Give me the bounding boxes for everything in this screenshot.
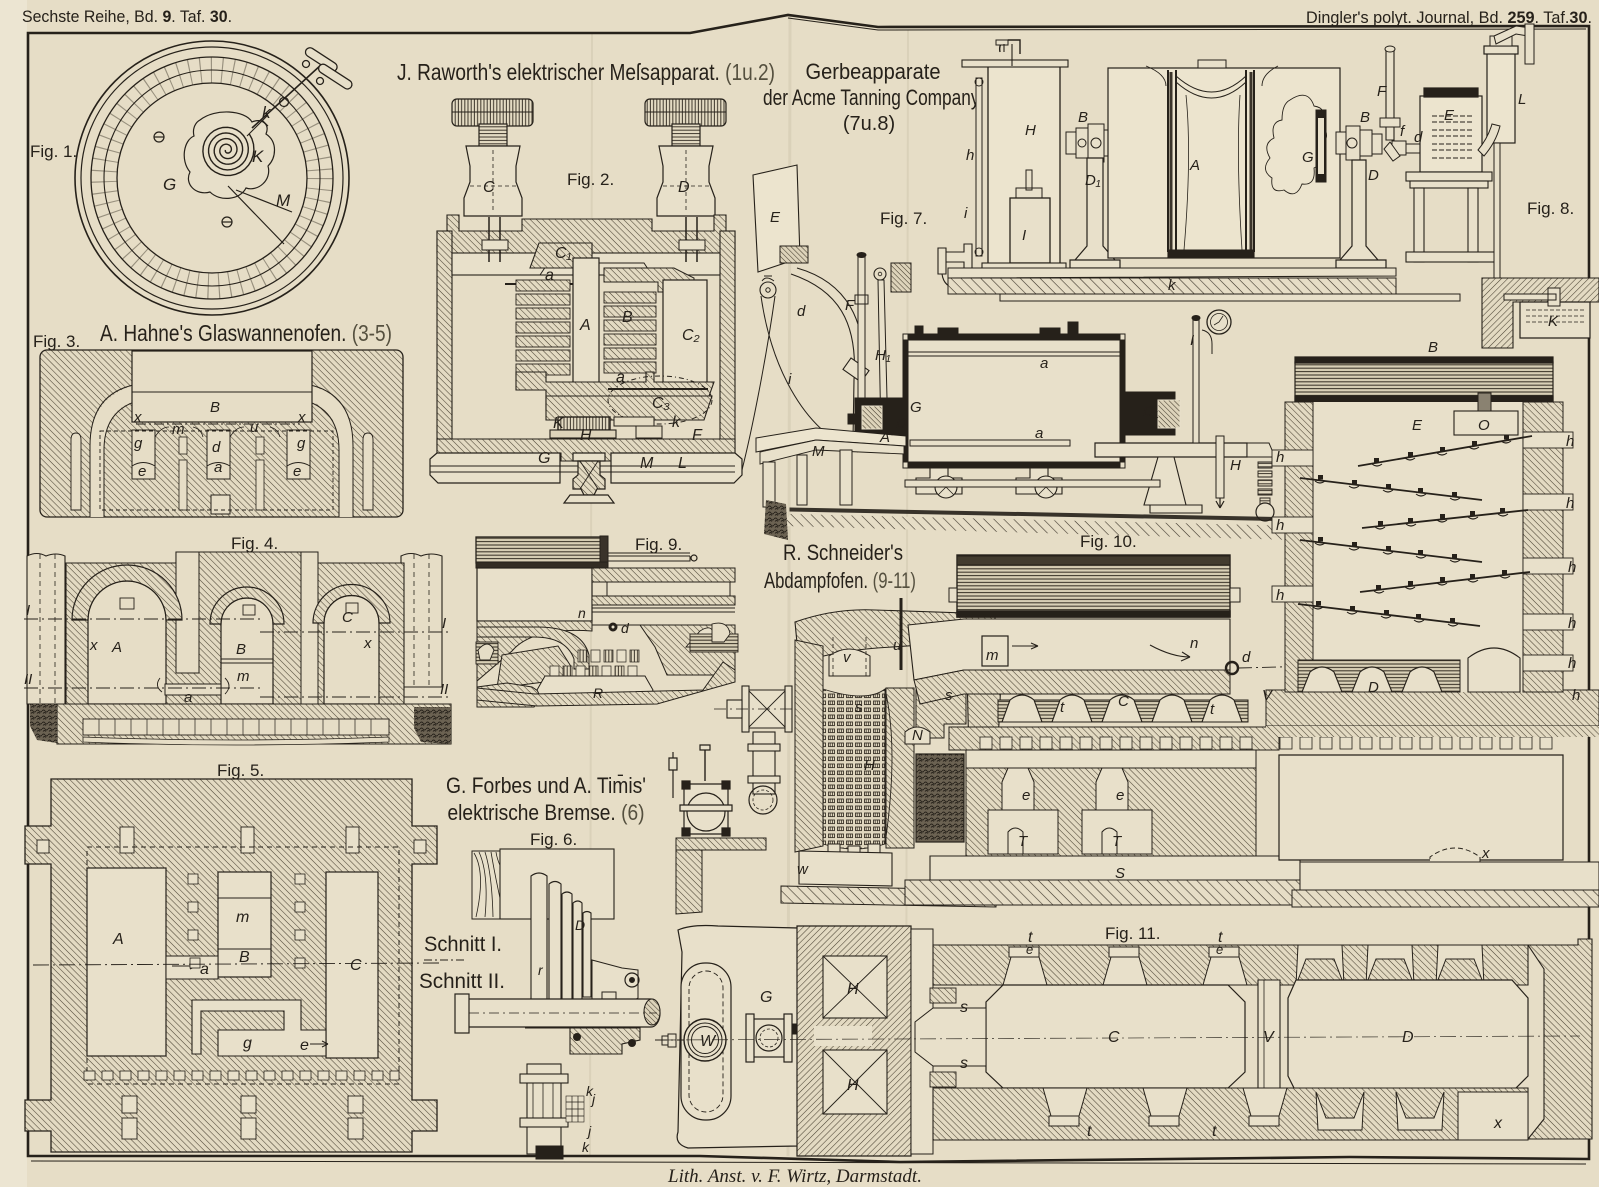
svg-text:d: d bbox=[212, 439, 221, 456]
svg-text:Fig. 11.: Fig. 11. bbox=[1105, 924, 1160, 943]
svg-text:Fig. 2.: Fig. 2. bbox=[567, 170, 614, 189]
svg-text:E: E bbox=[1444, 107, 1455, 124]
svg-text:e: e bbox=[293, 463, 301, 480]
svg-text:J. Raworth's elektrischer Meſs: J. Raworth's elektrischer Meſsapparat. (… bbox=[397, 59, 775, 85]
svg-text:II: II bbox=[440, 681, 448, 698]
svg-text:I: I bbox=[1022, 227, 1026, 244]
svg-text:m: m bbox=[237, 668, 250, 685]
svg-text:D: D bbox=[678, 179, 690, 196]
svg-text:D₁: D₁ bbox=[1085, 172, 1101, 189]
svg-text:Fig. 7.: Fig. 7. bbox=[880, 209, 927, 228]
svg-text:s: s bbox=[960, 999, 968, 1016]
svg-text:(7u.8): (7u.8) bbox=[843, 113, 895, 135]
svg-text:s: s bbox=[960, 1055, 968, 1072]
svg-text:R: R bbox=[593, 685, 603, 701]
svg-text:F: F bbox=[1377, 83, 1387, 100]
svg-text:elektrische Bremse. (6): elektrische Bremse. (6) bbox=[448, 800, 645, 825]
svg-text:Lith. Anst. v. F. Wirtz,​ Darm: Lith. Anst. v. F. Wirtz,​ Darmstadt. bbox=[667, 1166, 922, 1187]
svg-text:h: h bbox=[1276, 587, 1284, 604]
svg-text:R. Schneider's: R. Schneider's bbox=[783, 540, 903, 565]
svg-text:Fig. 1.: Fig. 1. bbox=[30, 142, 77, 161]
svg-text:h: h bbox=[1568, 655, 1576, 672]
svg-text:C₃: C₃ bbox=[652, 395, 670, 412]
svg-text:Schnitt II.: Schnitt II. bbox=[419, 970, 505, 993]
svg-text:h: h bbox=[1568, 559, 1576, 576]
svg-text:B: B bbox=[1078, 109, 1088, 126]
svg-text:k: k bbox=[672, 414, 681, 431]
svg-text:Fig. 8.: Fig. 8. bbox=[1527, 199, 1574, 218]
svg-text:u: u bbox=[250, 419, 259, 436]
svg-text:a: a bbox=[545, 267, 554, 284]
svg-text:x: x bbox=[133, 409, 142, 426]
svg-text:h: h bbox=[1276, 449, 1284, 466]
svg-text:D: D bbox=[1402, 1029, 1414, 1046]
svg-text:S: S bbox=[1115, 865, 1125, 882]
svg-text:C: C bbox=[1118, 693, 1129, 710]
svg-text:F: F bbox=[692, 427, 703, 444]
svg-text:h: h bbox=[1276, 517, 1284, 534]
svg-text:w: w bbox=[797, 861, 809, 878]
svg-text:a: a bbox=[1040, 355, 1048, 372]
svg-text:d: d bbox=[1414, 129, 1423, 146]
svg-text:K: K bbox=[1548, 313, 1559, 330]
svg-text:L: L bbox=[1518, 91, 1526, 108]
svg-text:H: H bbox=[847, 981, 859, 998]
svg-text:n: n bbox=[578, 605, 586, 621]
svg-text:e: e bbox=[1116, 787, 1124, 804]
svg-text:O: O bbox=[1478, 417, 1490, 434]
svg-text:a: a bbox=[214, 459, 222, 476]
svg-text:A: A bbox=[112, 931, 124, 948]
svg-text:D₁: D₁ bbox=[1143, 403, 1159, 420]
svg-text:der Acme Tanning Company.: der Acme Tanning Company. bbox=[763, 85, 983, 110]
svg-text:Gerbeapparate: Gerbeapparate bbox=[806, 59, 941, 84]
svg-text:u: u bbox=[893, 637, 902, 654]
svg-text:g: g bbox=[243, 1035, 252, 1052]
svg-text:d: d bbox=[1242, 649, 1251, 666]
svg-text:B: B bbox=[236, 641, 246, 658]
svg-text:C: C bbox=[1108, 1029, 1120, 1046]
svg-text:t: t bbox=[1212, 1123, 1217, 1140]
svg-text:a: a bbox=[184, 689, 192, 706]
svg-text:C₂: C₂ bbox=[682, 327, 700, 344]
svg-text:e: e bbox=[300, 1037, 309, 1054]
svg-text:e: e bbox=[1216, 942, 1223, 957]
svg-text:G. Forbes und A. Tim̄is': G. Forbes und A. Tim̄is' bbox=[446, 773, 646, 798]
svg-text:x: x bbox=[89, 637, 98, 654]
svg-text:d: d bbox=[621, 620, 630, 636]
svg-text:h: h bbox=[1572, 687, 1580, 704]
svg-text:e: e bbox=[1026, 942, 1033, 957]
svg-text:B: B bbox=[1428, 339, 1438, 356]
svg-text:N: N bbox=[912, 727, 923, 744]
svg-text:E: E bbox=[1412, 417, 1423, 434]
svg-text:A. Hahne's Glaswannenofen. (3-: A. Hahne's Glaswannenofen. (3-5) bbox=[100, 320, 392, 346]
svg-text:I: I bbox=[442, 615, 446, 632]
svg-text:k: k bbox=[582, 1139, 590, 1155]
svg-text:V: V bbox=[1263, 1029, 1275, 1046]
svg-text:Fig. 4.: Fig. 4. bbox=[231, 534, 278, 553]
svg-text:C₁: C₁ bbox=[555, 245, 572, 262]
svg-text:K: K bbox=[553, 415, 565, 432]
svg-text:C: C bbox=[483, 179, 495, 196]
svg-text:D: D bbox=[896, 415, 907, 432]
svg-text:m: m bbox=[236, 909, 249, 926]
svg-text:m: m bbox=[172, 421, 185, 438]
svg-text:II: II bbox=[24, 671, 32, 688]
svg-text:H: H bbox=[580, 427, 592, 444]
svg-text:Fig. 9.: Fig. 9. bbox=[635, 535, 682, 554]
svg-text:t: t bbox=[1087, 1123, 1092, 1140]
svg-text:g: g bbox=[297, 435, 306, 452]
svg-text:s: s bbox=[945, 687, 953, 704]
svg-text:Fig. 6.: Fig. 6. bbox=[530, 830, 577, 849]
svg-text:C: C bbox=[350, 957, 362, 974]
svg-text:G: G bbox=[1302, 149, 1314, 166]
svg-text:D: D bbox=[1368, 679, 1379, 696]
svg-text:A': A' bbox=[879, 429, 894, 446]
svg-text:M: M bbox=[276, 191, 291, 210]
svg-text:x: x bbox=[1481, 845, 1490, 862]
svg-text:H: H bbox=[864, 757, 875, 774]
svg-text:Fig. 5.: Fig. 5. bbox=[217, 761, 264, 780]
svg-text:a: a bbox=[1035, 425, 1043, 442]
svg-text:A: A bbox=[1189, 157, 1200, 174]
svg-text:h: h bbox=[1566, 433, 1574, 450]
svg-text:D: D bbox=[575, 917, 585, 933]
svg-text:e: e bbox=[1022, 787, 1030, 804]
svg-text:H: H bbox=[1025, 122, 1036, 139]
svg-text:C: C bbox=[342, 609, 353, 626]
svg-text:a: a bbox=[200, 961, 209, 978]
svg-text:H: H bbox=[1230, 457, 1241, 474]
svg-text:m: m bbox=[986, 647, 999, 664]
svg-text:Sechste Reihe, Bd. 9. Taf. 30.: Sechste Reihe, Bd. 9. Taf. 30. bbox=[22, 8, 232, 26]
svg-text:Fig. 3.: Fig. 3. bbox=[33, 332, 80, 351]
svg-text:G: G bbox=[760, 989, 772, 1006]
svg-text:Schnitt I.: Schnitt I. bbox=[424, 933, 502, 956]
svg-text:G: G bbox=[538, 450, 550, 467]
svg-text:A: A bbox=[579, 317, 591, 334]
svg-text:x: x bbox=[297, 409, 306, 426]
svg-text:A: A bbox=[111, 639, 122, 656]
svg-text:G: G bbox=[910, 399, 922, 416]
svg-text:L: L bbox=[678, 455, 687, 472]
svg-text:G: G bbox=[163, 175, 176, 194]
svg-text:I: I bbox=[26, 602, 30, 619]
svg-text:D: D bbox=[1368, 167, 1379, 184]
svg-text:a: a bbox=[616, 369, 625, 386]
svg-text:B: B bbox=[210, 399, 220, 416]
svg-text:d: d bbox=[797, 303, 806, 320]
svg-text:B: B bbox=[239, 949, 250, 966]
svg-text:Abdampfofen. (9-11): Abdampfofen. (9-11) bbox=[764, 568, 916, 593]
svg-text:H₁: H₁ bbox=[875, 347, 891, 364]
svg-text:K: K bbox=[252, 147, 264, 166]
svg-text:M: M bbox=[640, 455, 654, 472]
svg-text:x: x bbox=[1493, 1115, 1503, 1132]
svg-text:E: E bbox=[770, 209, 781, 226]
svg-text:F: F bbox=[845, 297, 855, 314]
svg-text:h: h bbox=[1568, 615, 1576, 632]
svg-text:e: e bbox=[138, 463, 146, 480]
svg-text:Dingler's polyt. Journal, Bd.: Dingler's polyt. Journal, Bd. 259. Taf.3… bbox=[1306, 9, 1592, 27]
svg-text:B: B bbox=[1360, 109, 1370, 126]
svg-text:I: I bbox=[1190, 332, 1194, 349]
svg-text:H: H bbox=[847, 1077, 859, 1094]
svg-text:s: s bbox=[855, 699, 863, 716]
svg-text:M: M bbox=[812, 443, 825, 460]
svg-text:n: n bbox=[1190, 635, 1198, 652]
svg-text:h: h bbox=[1566, 495, 1574, 512]
svg-text:h: h bbox=[966, 147, 974, 164]
svg-text:W: W bbox=[700, 1033, 717, 1050]
svg-text:B: B bbox=[622, 309, 633, 326]
svg-text:x: x bbox=[363, 635, 372, 652]
svg-text:g: g bbox=[134, 435, 143, 452]
